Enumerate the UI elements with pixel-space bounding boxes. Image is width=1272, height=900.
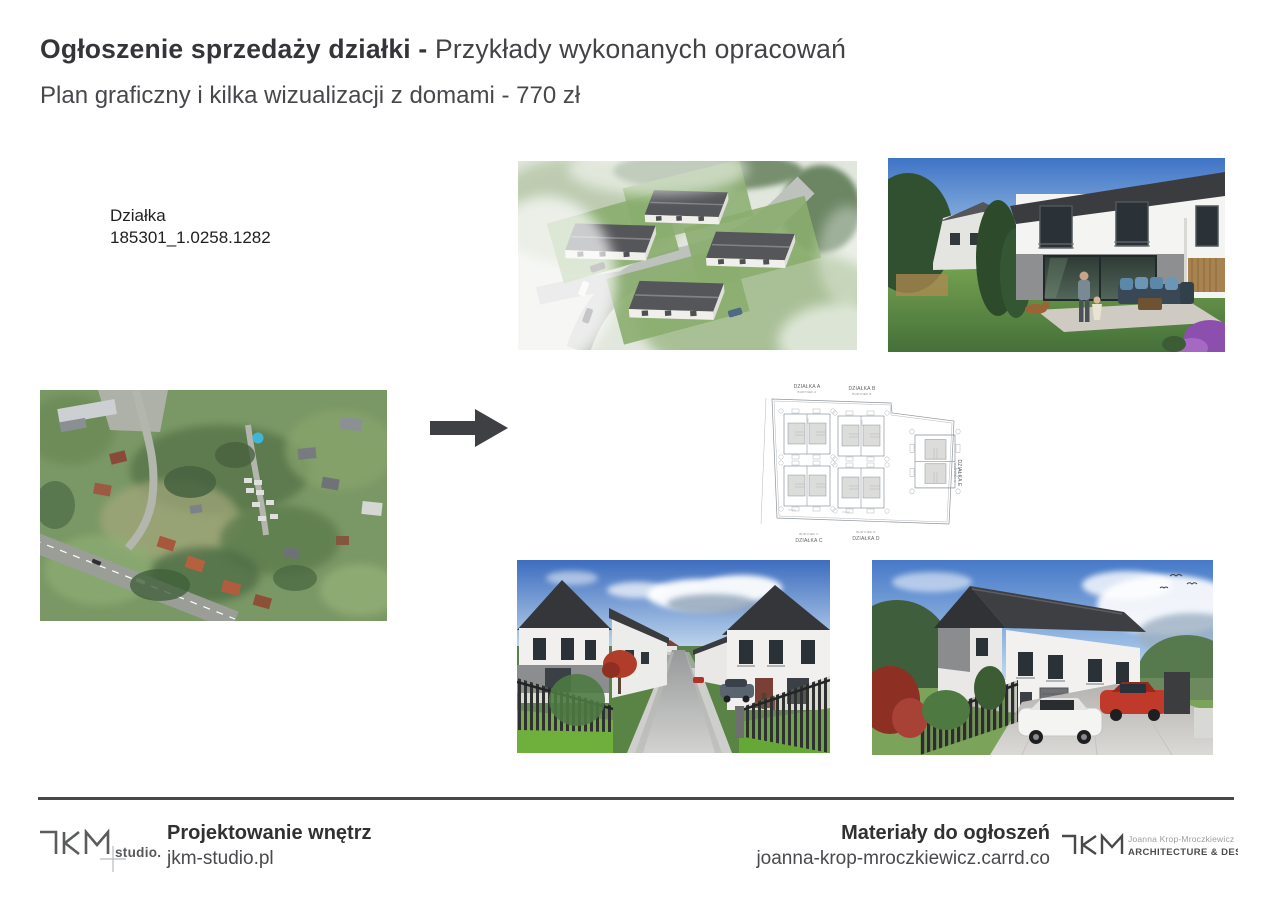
site-plan-sublabel-e: BUDYNEK E [953, 463, 957, 482]
garden-render-image [888, 158, 1225, 352]
footer-right-text: Materiały do ogłoszeń joanna-krop-mroczk… [756, 820, 1050, 872]
garden-table [1138, 298, 1162, 310]
footer-right-url: joanna-krop-mroczkiewicz.carrd.co [756, 846, 1050, 872]
garden-wood-fence [896, 274, 948, 296]
driveway-gate [1164, 672, 1190, 714]
satellite-pool [253, 433, 264, 444]
page-subtitle: Plan graficzny i kilka wizualizacji z do… [40, 82, 580, 110]
page-title-regular: Przykłady wykonanych opracowań [427, 34, 846, 64]
aerial-render-image [518, 161, 857, 350]
plot-label: Działka [110, 205, 271, 227]
garden-render-art [888, 158, 1225, 352]
site-plan-sublabel-a: BUDYNEK A [798, 390, 817, 394]
driveway-green-bush [922, 690, 970, 730]
site-plan-art: DZIAŁKA A BUDYNEK A DZIAŁKA B BUDYNEK B … [758, 378, 963, 546]
driveway-render-art [872, 560, 1213, 755]
footer-right-title: Materiały do ogłoszeń [756, 820, 1050, 846]
footer-left-title: Projektowanie wnętrz [167, 820, 372, 846]
jkm-logo-glyph [40, 832, 108, 854]
page-title-bold: Ogłoszenie sprzedaży działki - [40, 34, 427, 64]
street-gate-pillar [735, 706, 744, 738]
site-plan-sublabel-c: BUDYNEK C [799, 532, 819, 536]
jkm-logo-studio-text: studio.pl [115, 845, 162, 860]
satellite-photo-art [40, 390, 387, 621]
architecture-logo-name: Joanna Krop-Mroczkiewicz [1128, 834, 1234, 844]
plot-label-block: Działka 185301_1.0258.1282 [110, 205, 271, 250]
footer-divider [38, 797, 1234, 800]
site-plan-label-d: DZIAŁKA D [852, 536, 880, 542]
site-plan-image: DZIAŁKA A BUDYNEK A DZIAŁKA B BUDYNEK B … [758, 378, 963, 546]
architecture-logo-glyph [1062, 836, 1122, 854]
street-render-image [517, 560, 830, 753]
plot-id: 185301_1.0258.1282 [110, 227, 271, 249]
street-red-car [693, 677, 704, 683]
site-plan-sublabel-d: BUDYNEK D [856, 530, 876, 534]
aerial-render-art [518, 161, 857, 350]
architecture-logo: Joanna Krop-Mroczkiewicz ARCHITECTURE & … [1058, 826, 1238, 875]
footer-left-url: jkm-studio.pl [167, 846, 372, 872]
arrow-right-icon [430, 407, 510, 449]
site-plan-sublabel-b: BUDYNEK B [852, 392, 871, 396]
garden-window-1 [1040, 206, 1072, 248]
page-title: Ogłoszenie sprzedaży działki - Przykłady… [40, 34, 846, 65]
presentation-page: Ogłoszenie sprzedaży działki - Przykłady… [0, 0, 1272, 900]
garden-window-2 [1116, 202, 1148, 246]
street-bush [549, 674, 605, 726]
footer-left-text: Projektowanie wnętrz jkm-studio.pl [167, 820, 372, 872]
satellite-photo-image [40, 390, 387, 621]
jkm-studio-logo: studio.pl [34, 820, 162, 881]
site-plan-label-c: DZIAŁKA C [795, 538, 823, 544]
driveway-render-image [872, 560, 1213, 755]
architecture-logo-tagline: ARCHITECTURE & DESIGN [1128, 847, 1238, 858]
street-render-art [517, 560, 830, 753]
